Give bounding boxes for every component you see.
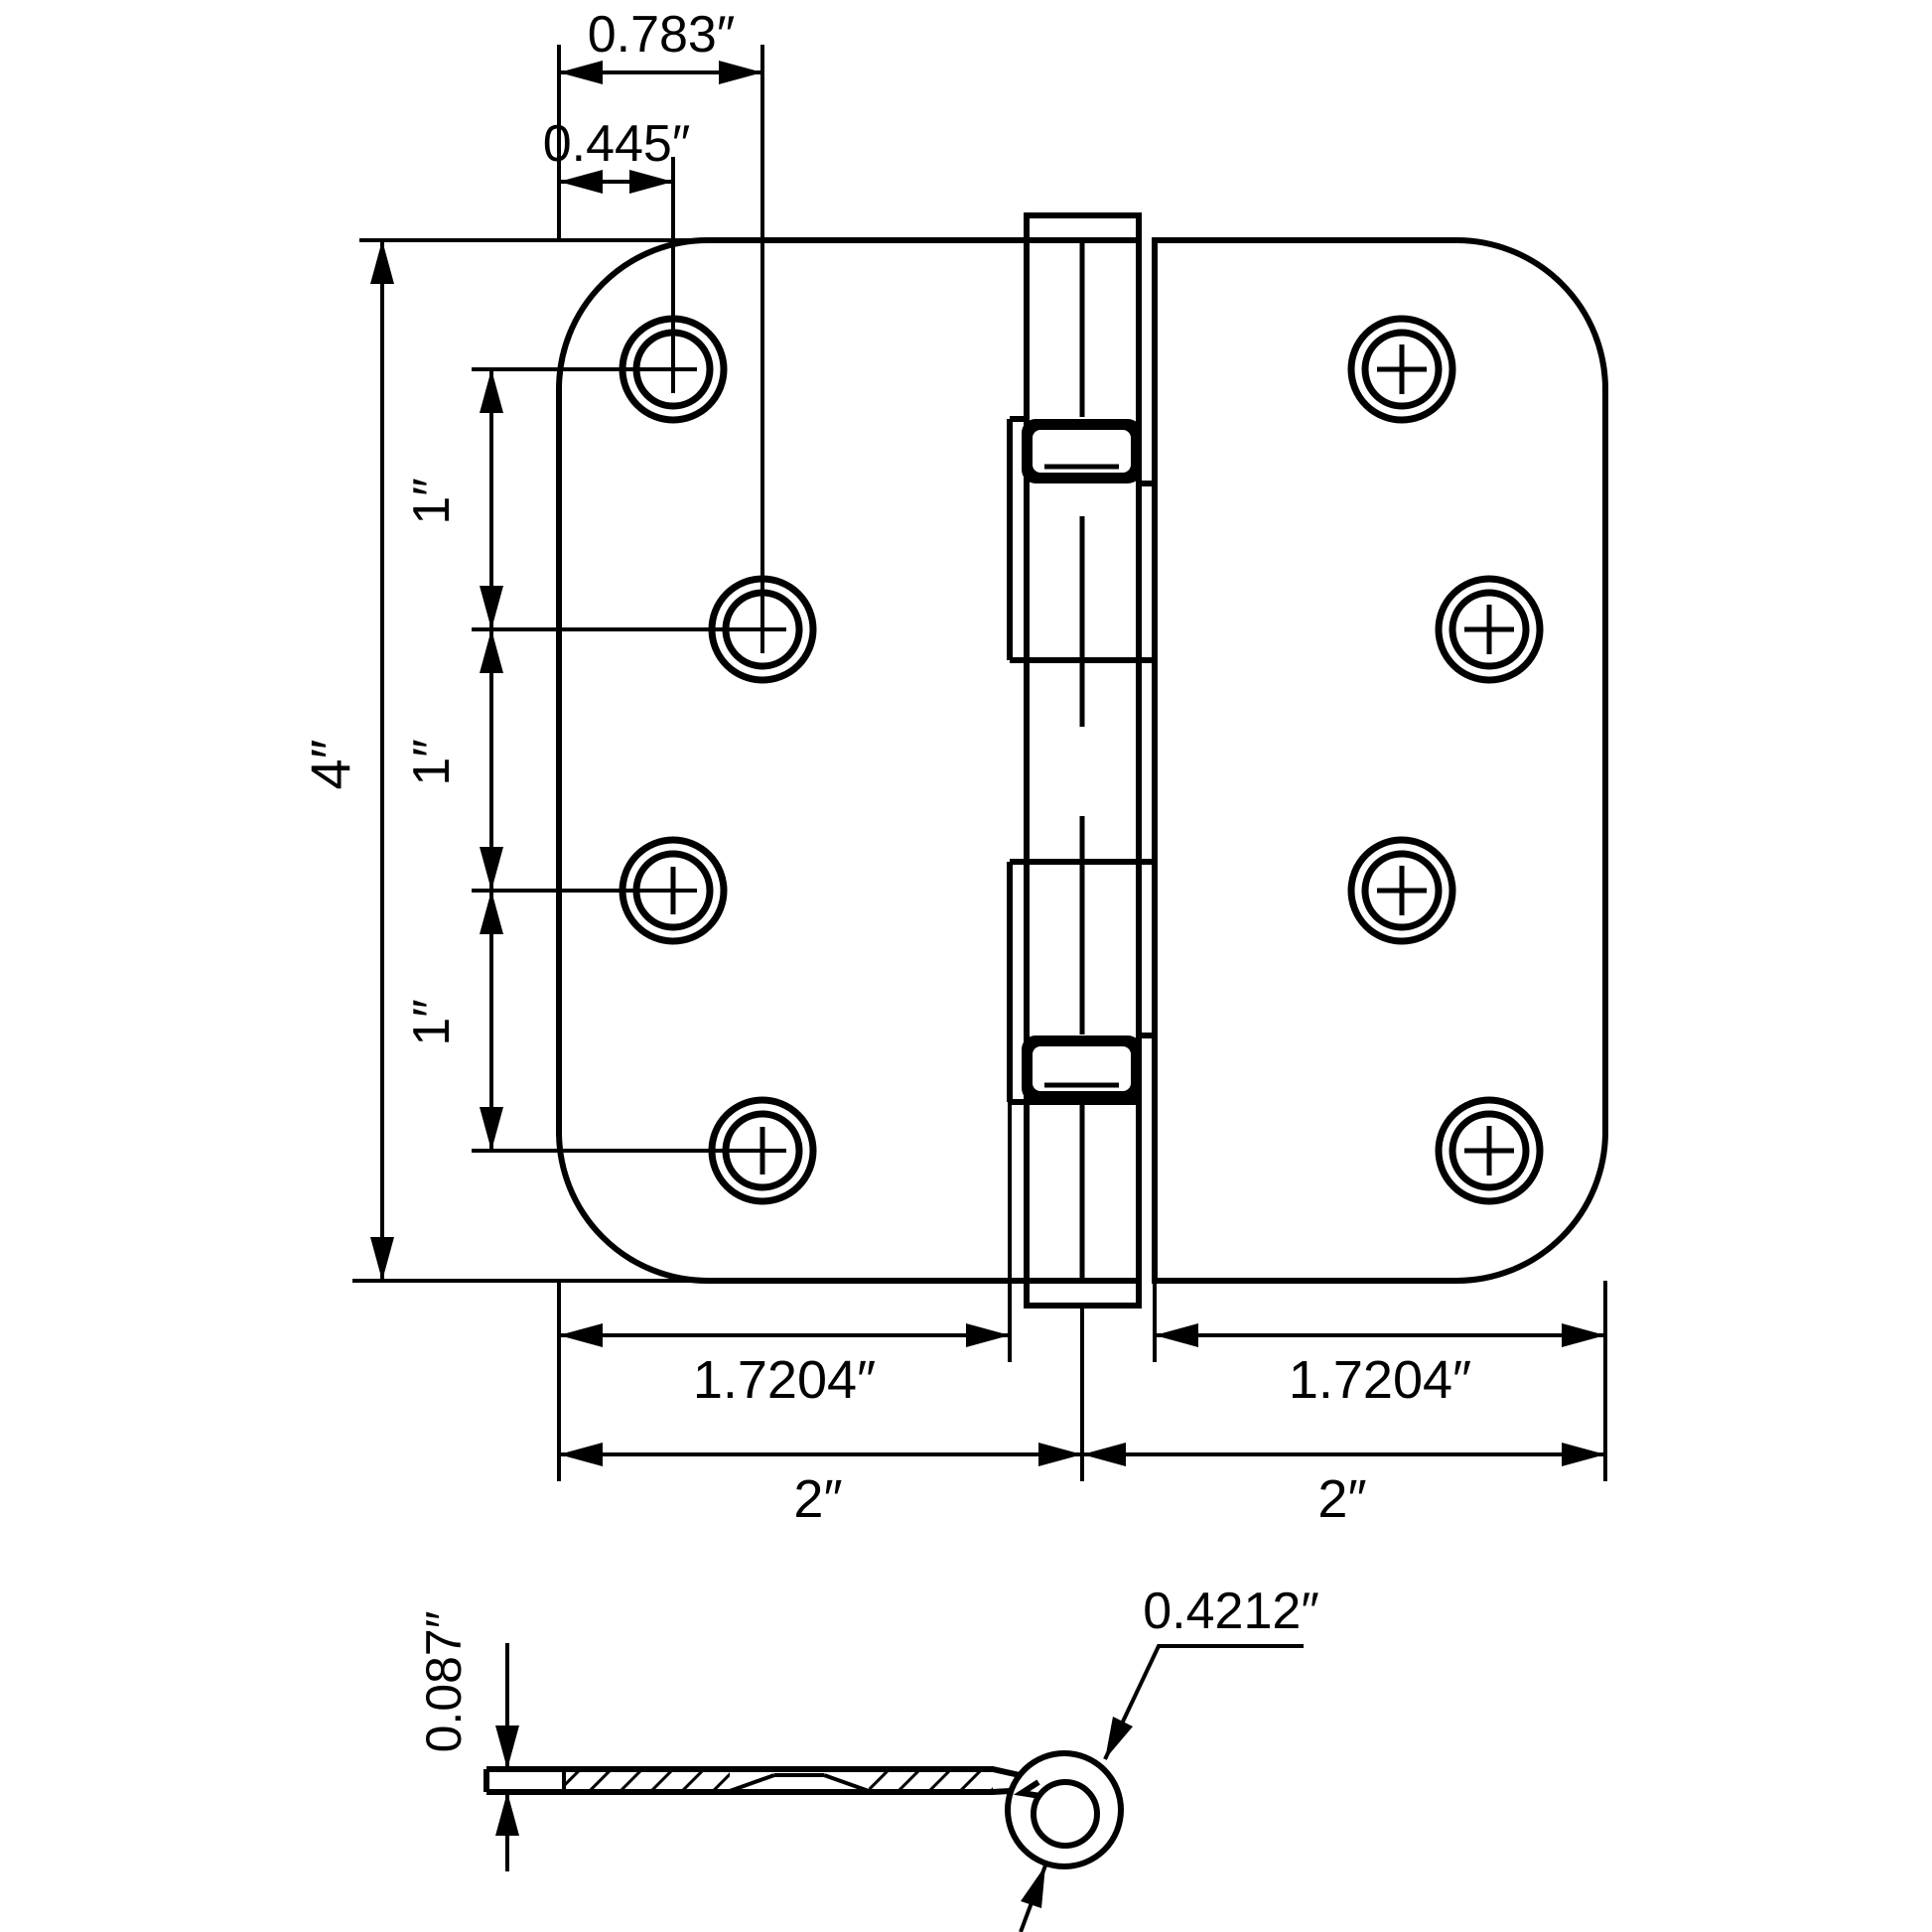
dim-0783: 0.783″: [559, 6, 762, 84]
dim-label-top-inner: 0.445″: [543, 115, 691, 173]
dim-knuckle-diameter: 0.4212″: [1105, 1583, 1319, 1759]
drawing-canvas: 0.783″ 0.445″ 4″: [0, 0, 1932, 1932]
section-hatch: [869, 1771, 993, 1790]
dim-label-flat-right: 1.7204″: [1289, 1350, 1471, 1410]
side-view: 0.087″ 0.4212″: [416, 1583, 1319, 1932]
dim-label-width-right: 2″: [1317, 1469, 1366, 1529]
dim-row-spacing: 1″ 1″ 1″: [403, 369, 503, 1151]
dim-label-thickness: 0.087″: [416, 1611, 472, 1753]
screw-hole: [622, 319, 813, 1201]
dimensions-front: 0.783″ 0.445″ 4″: [299, 6, 1605, 1529]
leader-bottom: [1021, 1865, 1045, 1932]
bearing-lower: [1022, 1035, 1142, 1102]
dim-label-spacing-1: 1″: [403, 478, 461, 524]
dim-label-spacing-3: 1″: [403, 999, 461, 1045]
dim-thickness: 0.087″: [416, 1611, 519, 1871]
dim-label-height: 4″: [299, 740, 361, 790]
bearing-upper: [1022, 419, 1142, 483]
dim-label-top-outer: 0.783″: [588, 6, 736, 64]
section-hatch: [564, 1771, 730, 1790]
dim-label-flat-left: 1.7204″: [693, 1350, 876, 1410]
dim-label-knuckle-diameter: 0.4212″: [1143, 1583, 1318, 1640]
barrel-bottom-cap: [1027, 1281, 1139, 1306]
dim-label-width-left: 2″: [793, 1469, 842, 1529]
dim-leaf-width: 2″ 2″: [559, 1443, 1605, 1529]
barrel-top-cap: [1027, 215, 1139, 240]
screw-hole: [1351, 319, 1540, 1201]
front-view: [559, 215, 1605, 1306]
countersink-hole: [730, 1775, 869, 1791]
dim-label-spacing-2: 1″: [403, 739, 461, 785]
dim-0445: 0.445″: [543, 115, 691, 194]
knuckle-curl: [1008, 1753, 1121, 1866]
hinge-dimension-drawing: 0.783″ 0.445″ 4″: [0, 0, 1932, 1932]
